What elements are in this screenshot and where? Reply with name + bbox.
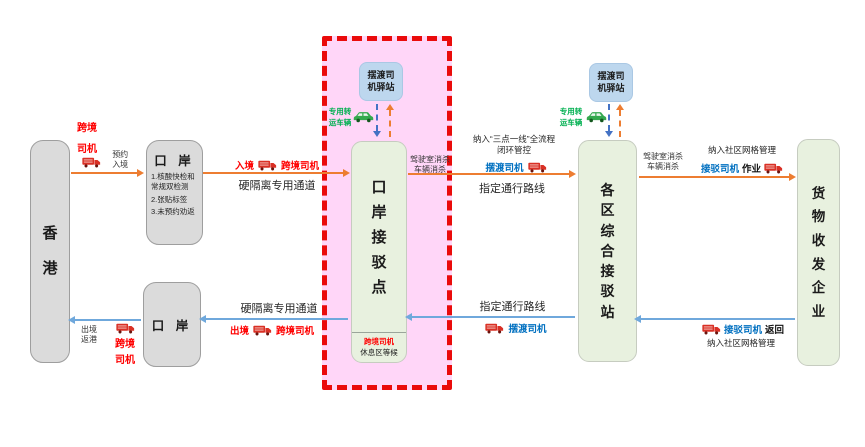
hongkong-label: 香港	[41, 217, 59, 286]
ferry-driver-return-row: 摆渡司机	[477, 321, 555, 335]
exit-return-hk-label: 出境返港	[81, 325, 99, 346]
shuttle-down-dashed-arrow-1	[376, 104, 378, 131]
designated-route-return-label: 指定通行路线	[465, 298, 560, 314]
node-hongkong: 香港	[30, 140, 70, 363]
community-grid-note-return: 纳入社区网格管理	[692, 338, 790, 349]
three-point-one-line-note: 纳入“三点一线”全流程 闭环管控	[455, 134, 573, 156]
port-entry-steps: 1.核酸快检和常规双检测 2.张贴标签 3.未预约劝返	[147, 169, 202, 217]
arrow-district-to-cargo	[639, 176, 789, 178]
node-port-entry: 口 岸 1.核酸快检和常规双检测 2.张贴标签 3.未预约劝返	[146, 140, 203, 245]
arrowhead-down-icon	[605, 131, 613, 137]
ferry-driver-label: 摆渡司机	[508, 321, 546, 335]
cross-border-driver-label: 跨境司机	[113, 337, 137, 368]
port-transfer-point-footer: 跨境司机 休息区等候	[352, 332, 406, 362]
return-label: 返回	[765, 322, 784, 336]
cross-border-driver-label: 跨境司机	[75, 118, 99, 160]
arrow-district-to-transfer-point	[412, 316, 575, 318]
arrowhead-down-icon	[373, 131, 381, 137]
shuttle-down-dashed-arrow-2	[608, 104, 610, 131]
truck-icon	[485, 323, 504, 334]
transfer-vehicle-1-label: 专用转运车辆	[328, 107, 352, 129]
shuttle-driver-label: 接驳司机	[701, 161, 739, 175]
port-exit-title: 口 岸	[152, 315, 192, 334]
truck-icon	[702, 324, 721, 335]
ferry-driver-label: 摆渡司机	[485, 160, 523, 174]
district-station-label: 各区综合接驳站	[599, 180, 616, 322]
cross-border-driver-label: 跨境司机	[281, 158, 319, 172]
cross-border-driver-label: 跨境司机	[276, 323, 314, 337]
work-label: 作业	[742, 161, 761, 175]
arrow-port-to-hk	[75, 319, 141, 321]
community-grid-note: 纳入社区网格管理	[696, 145, 788, 156]
arrow-hk-to-port	[71, 172, 137, 174]
disinfection-note-2: 驾驶室消杀 车辆消杀	[632, 152, 694, 173]
entry-label: 入境	[235, 158, 254, 172]
shuttle-driver-label: 接驳司机	[724, 322, 762, 336]
ferry-driver-row: 摆渡司机	[470, 160, 562, 174]
ferry-driver-station-2: 摆渡司机驿站	[589, 63, 633, 102]
transfer-car-icon	[585, 111, 608, 123]
port-entry-step: 2.张贴标签	[151, 195, 198, 205]
port-transfer-point-body: 口岸接驳点	[352, 142, 406, 333]
transfer-car-icon	[352, 111, 375, 123]
cargo-enterprise-label: 货物收发企业	[810, 182, 826, 324]
truck-icon	[82, 157, 101, 168]
arrow-cargo-to-district	[641, 318, 795, 320]
exit-driver-row: 出境 跨境司机	[214, 323, 330, 337]
shuttle-up-dashed-arrow-2	[619, 110, 621, 137]
node-cargo-enterprise: 货物收发企业	[797, 139, 840, 366]
footer-wait-label: 休息区等候	[352, 347, 406, 358]
truck-icon	[116, 323, 135, 334]
truck-icon	[253, 325, 272, 336]
node-district-transfer-station: 各区综合接驳站	[578, 140, 637, 362]
port-transfer-point-label: 口岸接驳点	[370, 175, 388, 300]
shuttle-driver-return-row: 接驳司机 返回	[694, 322, 792, 336]
port-entry-step: 1.核酸快检和常规双检测	[151, 172, 198, 192]
diagram-canvas: 香港 口 岸 1.核酸快检和常规双检测 2.张贴标签 3.未预约劝返 口 岸 口…	[0, 0, 865, 447]
arrowhead-up-icon	[616, 104, 624, 110]
arrow-transfer-point-to-port	[206, 318, 348, 320]
exit-label: 出境	[230, 323, 249, 337]
ferry-driver-station-1-label: 摆渡司机驿站	[366, 70, 397, 93]
port-entry-title: 口 岸	[154, 150, 194, 169]
port-entry-step: 3.未预约劝返	[151, 207, 198, 217]
disinfection-note-1: 驾驶室消杀 车辆消杀	[399, 155, 461, 176]
truck-icon	[528, 162, 547, 173]
truck-icon	[258, 160, 277, 171]
ferry-driver-station-2-label: 摆渡司机驿站	[596, 71, 627, 94]
designated-route-label: 指定通行路线	[462, 180, 562, 196]
node-port-exit: 口 岸	[143, 282, 201, 367]
truck-icon	[764, 163, 783, 174]
shuttle-up-dashed-arrow-1	[389, 110, 391, 137]
arrow-port-to-transfer-point	[203, 172, 343, 174]
hard-isolation-channel-return-label: 硬隔离专用通道	[228, 300, 330, 316]
reserve-entry-label: 预约入境	[111, 150, 129, 171]
arrowhead-up-icon	[386, 104, 394, 110]
transfer-vehicle-2-label: 专用转运车辆	[559, 107, 583, 129]
footer-driver-label: 跨境司机	[352, 336, 406, 347]
shuttle-driver-work-row: 接驳司机 作业	[690, 161, 794, 175]
ferry-driver-station-1: 摆渡司机驿站	[359, 62, 403, 101]
